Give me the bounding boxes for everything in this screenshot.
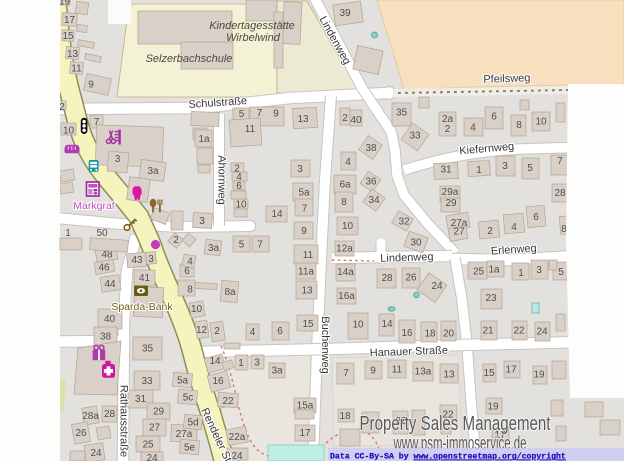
svg-text:14a: 14a: [337, 267, 354, 278]
svg-text:5a: 5a: [177, 376, 189, 387]
svg-text:16: 16: [401, 328, 413, 339]
svg-text:5: 5: [527, 163, 533, 174]
svg-text:5e: 5e: [184, 443, 196, 454]
svg-text:8a: 8a: [224, 287, 236, 298]
svg-text:40: 40: [104, 314, 116, 325]
svg-text:22a: 22a: [229, 432, 246, 443]
svg-text:6: 6: [491, 112, 497, 123]
svg-text:31: 31: [135, 394, 147, 405]
svg-text:24: 24: [146, 453, 158, 461]
svg-text:23: 23: [485, 293, 497, 304]
svg-text:13: 13: [67, 49, 79, 60]
svg-text:24: 24: [536, 327, 548, 338]
svg-text:1: 1: [518, 268, 524, 279]
svg-text:24: 24: [90, 448, 102, 459]
svg-text:6: 6: [184, 266, 190, 277]
svg-text:1a: 1a: [198, 134, 210, 145]
svg-text:10: 10: [63, 126, 75, 137]
svg-text:3: 3: [536, 265, 542, 276]
svg-text:35: 35: [142, 344, 154, 355]
svg-text:3a: 3a: [147, 166, 159, 177]
svg-text:39: 39: [339, 8, 351, 19]
svg-text:3: 3: [502, 161, 508, 172]
svg-text:3: 3: [254, 358, 260, 369]
svg-text:3: 3: [199, 216, 205, 227]
svg-text:25: 25: [473, 267, 485, 278]
svg-text:5: 5: [558, 267, 564, 278]
svg-text:33: 33: [409, 131, 421, 142]
svg-text:6: 6: [533, 212, 539, 223]
svg-text:Pfeilsweg: Pfeilsweg: [483, 72, 530, 86]
svg-text:28: 28: [554, 188, 566, 199]
svg-text:8: 8: [516, 120, 522, 131]
svg-text:4: 4: [470, 123, 476, 134]
svg-text:6a: 6a: [339, 180, 351, 191]
svg-text:29: 29: [445, 198, 457, 209]
svg-text:38: 38: [100, 332, 112, 343]
svg-text:9: 9: [88, 80, 94, 91]
svg-text:14: 14: [209, 356, 221, 367]
svg-text:4: 4: [187, 257, 193, 268]
svg-text:43: 43: [131, 255, 143, 266]
svg-text:10: 10: [342, 221, 354, 232]
svg-text:8: 8: [341, 197, 347, 208]
svg-text:15: 15: [62, 31, 74, 42]
svg-text:1: 1: [476, 165, 482, 176]
svg-text:1: 1: [65, 228, 71, 239]
svg-text:4: 4: [345, 157, 351, 168]
svg-text:18: 18: [424, 329, 436, 340]
svg-text:7: 7: [343, 368, 349, 379]
svg-text:41: 41: [139, 273, 151, 284]
svg-text:25: 25: [142, 440, 154, 451]
svg-text:24: 24: [431, 281, 443, 292]
svg-text:46: 46: [98, 263, 110, 274]
svg-text:13: 13: [297, 114, 309, 125]
svg-text:28: 28: [381, 273, 393, 284]
svg-text:Kindertagesstätte: Kindertagesstätte: [209, 20, 295, 32]
svg-text:17: 17: [64, 15, 76, 26]
svg-text:2: 2: [173, 235, 179, 246]
svg-text:38: 38: [365, 143, 377, 154]
svg-text:Buchenweg: Buchenweg: [319, 316, 331, 374]
svg-text:22: 22: [513, 326, 525, 337]
svg-text:5: 5: [239, 240, 245, 251]
svg-text:11: 11: [303, 250, 314, 261]
svg-text:Ahornweg: Ahornweg: [216, 155, 228, 205]
svg-text:2: 2: [487, 226, 493, 237]
svg-text:2: 2: [445, 124, 451, 135]
svg-text:3a: 3a: [208, 243, 220, 254]
svg-text:14: 14: [381, 319, 393, 330]
svg-text:Wirbelwind: Wirbelwind: [226, 32, 281, 44]
svg-text:11: 11: [71, 64, 82, 75]
svg-text:7: 7: [302, 204, 308, 215]
svg-text:2: 2: [342, 113, 348, 124]
svg-text:44: 44: [104, 279, 116, 290]
svg-text:Data CC-By-SA by www.openstree: Data CC-By-SA by www.openstreetmap.org/c…: [330, 452, 566, 462]
svg-text:10: 10: [535, 117, 547, 128]
svg-text:26: 26: [75, 428, 87, 439]
svg-text:8: 8: [187, 285, 193, 296]
svg-text:2: 2: [214, 326, 220, 337]
svg-text:5c: 5c: [183, 393, 194, 404]
svg-text:20: 20: [443, 329, 455, 340]
svg-text:9: 9: [301, 226, 307, 237]
svg-text:27: 27: [453, 227, 465, 238]
svg-text:27a: 27a: [176, 429, 193, 440]
svg-text:Rathausstraße: Rathausstraße: [118, 385, 130, 457]
svg-text:19: 19: [487, 402, 499, 413]
svg-text:Markgraf: Markgraf: [73, 200, 115, 212]
svg-text:31: 31: [440, 165, 452, 176]
svg-text:16: 16: [212, 376, 224, 387]
svg-text:6: 6: [277, 326, 283, 337]
svg-text:21: 21: [482, 326, 494, 337]
svg-text:11: 11: [392, 365, 403, 376]
svg-text:26: 26: [405, 273, 417, 284]
svg-text:Property Sales Management: Property Sales Management: [360, 413, 551, 435]
svg-text:7: 7: [557, 156, 563, 167]
svg-text:29: 29: [153, 407, 165, 418]
svg-text:Selzerbachschule: Selzerbachschule: [146, 53, 233, 65]
svg-text:10: 10: [191, 304, 203, 315]
svg-text:13a: 13a: [415, 367, 432, 378]
svg-text:9: 9: [370, 366, 376, 377]
svg-text:11a: 11a: [298, 267, 314, 278]
svg-text:35: 35: [396, 108, 408, 119]
svg-text:1a: 1a: [488, 265, 500, 276]
svg-text:13: 13: [301, 286, 313, 297]
svg-text:17: 17: [299, 428, 311, 439]
svg-text:33: 33: [141, 376, 153, 387]
svg-text:16a: 16a: [338, 291, 355, 302]
svg-text:15: 15: [483, 368, 495, 379]
svg-text:12a: 12a: [336, 244, 353, 255]
svg-text:5a: 5a: [298, 188, 310, 199]
svg-text:19: 19: [59, 0, 71, 8]
svg-text:27: 27: [149, 423, 161, 434]
svg-text:6: 6: [236, 181, 242, 192]
svg-text:10: 10: [352, 320, 364, 331]
svg-text:50: 50: [96, 228, 108, 239]
svg-text:28: 28: [104, 409, 116, 420]
svg-text:5d: 5d: [187, 418, 198, 429]
svg-text:15: 15: [302, 319, 314, 330]
svg-text:19: 19: [533, 370, 545, 381]
svg-text:5: 5: [239, 109, 245, 120]
svg-text:1: 1: [238, 358, 244, 369]
svg-text:7: 7: [257, 108, 263, 119]
svg-text:22: 22: [222, 396, 234, 407]
svg-text:28a: 28a: [82, 411, 99, 422]
svg-text:7: 7: [257, 240, 263, 251]
svg-text:30: 30: [410, 238, 422, 249]
svg-text:2: 2: [59, 102, 65, 113]
svg-text:13: 13: [443, 370, 455, 381]
svg-text:9: 9: [273, 109, 279, 120]
svg-text:29a: 29a: [442, 187, 459, 198]
svg-text:14: 14: [271, 209, 283, 220]
svg-text:18: 18: [339, 411, 351, 422]
svg-text:4: 4: [250, 327, 256, 338]
svg-text:34: 34: [368, 195, 380, 206]
svg-text:Sparda-Bank: Sparda-Bank: [111, 301, 173, 313]
svg-text:40: 40: [350, 115, 362, 126]
svg-text:32: 32: [398, 217, 410, 228]
svg-text:3a: 3a: [271, 366, 283, 377]
svg-text:11: 11: [245, 124, 256, 135]
svg-text:4: 4: [511, 222, 517, 233]
svg-text:3: 3: [148, 254, 154, 265]
svg-text:17: 17: [505, 365, 517, 376]
svg-text:12: 12: [196, 325, 208, 336]
svg-text:36: 36: [365, 177, 377, 188]
svg-text:3: 3: [297, 164, 303, 175]
svg-text:3: 3: [115, 154, 121, 165]
svg-text:Lindenweg: Lindenweg: [380, 251, 434, 265]
